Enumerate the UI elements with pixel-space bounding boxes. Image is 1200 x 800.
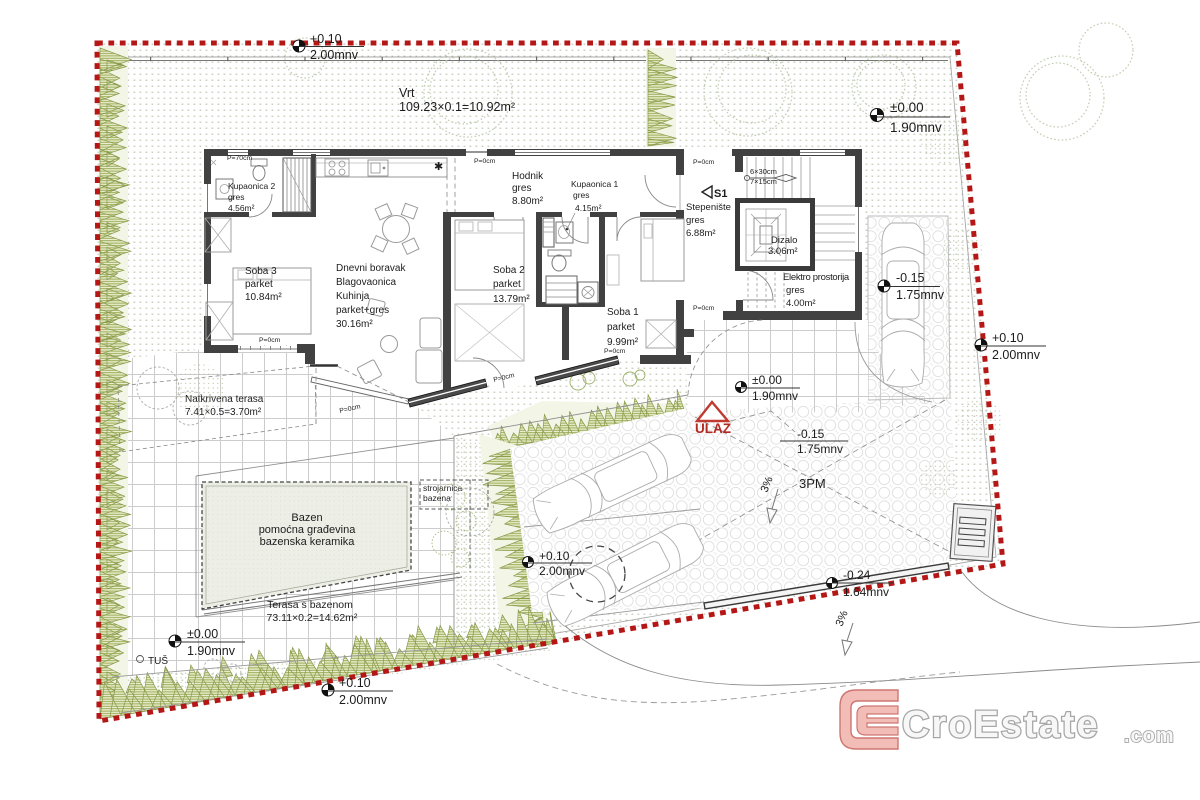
svg-text:4.00m²: 4.00m² — [786, 298, 816, 309]
svg-text:3%: 3% — [834, 609, 851, 628]
svg-text:9.99m²: 9.99m² — [607, 337, 639, 348]
svg-text:P=0cm: P=0cm — [693, 159, 715, 166]
svg-text:P=0cm: P=0cm — [259, 337, 281, 344]
svg-text:1.75mnv: 1.75mnv — [896, 288, 945, 302]
svg-text:±0.00: ±0.00 — [752, 373, 782, 387]
svg-text:✱: ✱ — [434, 161, 443, 173]
svg-text:73.11×0.2=14.62m²: 73.11×0.2=14.62m² — [267, 612, 358, 624]
svg-text:Soba 3: Soba 3 — [245, 266, 277, 277]
svg-text:gres: gres — [686, 215, 705, 226]
svg-text:Vrt: Vrt — [399, 86, 415, 100]
svg-text:-0.15: -0.15 — [797, 427, 825, 441]
svg-text:+0.10: +0.10 — [339, 676, 371, 690]
svg-text:P=0cm: P=0cm — [604, 348, 626, 355]
svg-text:+0.10: +0.10 — [310, 32, 342, 46]
svg-text:4.15m²: 4.15m² — [575, 203, 602, 213]
svg-text:1.90mnv: 1.90mnv — [187, 644, 236, 658]
svg-text:109.23×0.1=10.92m²: 109.23×0.1=10.92m² — [399, 100, 515, 114]
svg-text:parket: parket — [607, 322, 635, 333]
svg-text:Blagovaonica: Blagovaonica — [336, 277, 396, 288]
svg-text:gres: gres — [786, 285, 805, 296]
svg-text:Bazen: Bazen — [291, 512, 322, 524]
svg-text:7×15cm: 7×15cm — [750, 177, 777, 186]
svg-text:+0.10: +0.10 — [539, 549, 570, 563]
svg-text:6.88m²: 6.88m² — [686, 228, 716, 239]
svg-text:10.84m²: 10.84m² — [245, 292, 282, 303]
svg-text:bazenska keramika: bazenska keramika — [260, 536, 356, 548]
svg-text:2.00mnv: 2.00mnv — [339, 693, 388, 707]
svg-text:1.90mnv: 1.90mnv — [752, 389, 798, 403]
svg-text:pomoćna građevina: pomoćna građevina — [259, 524, 357, 536]
svg-text:CroEstate: CroEstate — [902, 704, 1100, 746]
svg-text:S1: S1 — [714, 188, 727, 200]
svg-text:Kuhinja: Kuhinja — [336, 291, 370, 302]
svg-text:6×30cm: 6×30cm — [750, 167, 777, 176]
svg-text:bazena: bazena — [423, 493, 451, 503]
svg-text:parket: parket — [493, 279, 521, 290]
svg-text:3.06m²: 3.06m² — [768, 246, 798, 257]
svg-text:+0.10: +0.10 — [992, 331, 1024, 345]
svg-text:parket: parket — [245, 279, 273, 290]
svg-text:-0.15: -0.15 — [896, 271, 925, 285]
svg-text:Soba 1: Soba 1 — [607, 307, 639, 318]
svg-text:Terasa s bazenom: Terasa s bazenom — [267, 599, 353, 611]
svg-text:gres: gres — [573, 190, 590, 200]
svg-text:13.79m²: 13.79m² — [493, 294, 530, 305]
svg-text:Dizalo: Dizalo — [771, 235, 797, 246]
svg-text:1.75mnv: 1.75mnv — [797, 442, 843, 456]
svg-text:30.16m²: 30.16m² — [336, 319, 373, 330]
svg-text:-0.24: -0.24 — [843, 568, 871, 582]
svg-text:2.00mnv: 2.00mnv — [539, 564, 585, 578]
svg-text:Stepenište: Stepenište — [686, 202, 731, 213]
svg-text:Soba 2: Soba 2 — [493, 265, 525, 276]
svg-text:2.00mnv: 2.00mnv — [992, 348, 1041, 362]
svg-text:±0.00: ±0.00 — [187, 627, 218, 641]
svg-text:4.56m²: 4.56m² — [228, 203, 255, 213]
svg-text:Elektro prostorija: Elektro prostorija — [783, 272, 850, 283]
svg-text:P=70cm: P=70cm — [227, 155, 252, 162]
svg-text:±0.00: ±0.00 — [890, 100, 924, 115]
svg-text:1.64mnv: 1.64mnv — [843, 585, 889, 599]
svg-text:gres: gres — [512, 183, 531, 194]
svg-text:.com: .com — [1124, 725, 1175, 747]
svg-text:1.90mnv: 1.90mnv — [890, 120, 942, 135]
svg-text:2.00mnv: 2.00mnv — [310, 48, 359, 62]
svg-text:P=0cm: P=0cm — [693, 305, 715, 312]
svg-text:3PM: 3PM — [799, 476, 826, 491]
svg-text:parket+gres: parket+gres — [336, 305, 389, 316]
svg-text:Hodnik: Hodnik — [512, 171, 544, 182]
svg-text:TUŠ: TUŠ — [148, 654, 168, 667]
svg-text:Kupaonica 2: Kupaonica 2 — [228, 181, 276, 191]
svg-text:P=0cm: P=0cm — [474, 158, 496, 165]
svg-text:Dnevni boravak: Dnevni boravak — [336, 263, 406, 274]
svg-text:8.80m²: 8.80m² — [512, 196, 544, 207]
svg-text:Kupaonica 1: Kupaonica 1 — [571, 179, 619, 189]
svg-text:ULAZ: ULAZ — [695, 421, 731, 436]
svg-text:gres: gres — [228, 192, 245, 202]
